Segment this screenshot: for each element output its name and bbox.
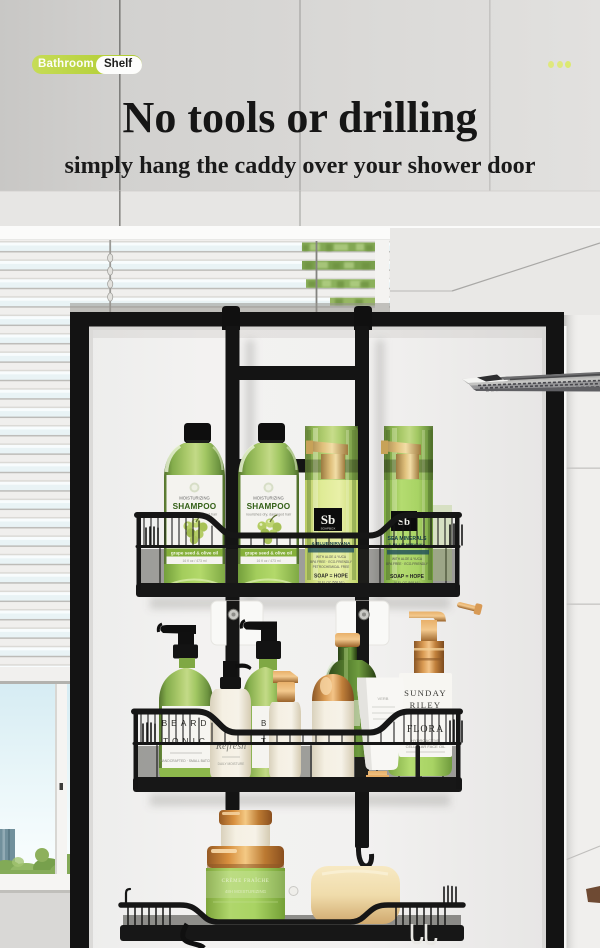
svg-text:BPA FREE · ECO-FRIENDLY: BPA FREE · ECO-FRIENDLY [386, 562, 429, 566]
svg-text:SOAPBOX: SOAPBOX [321, 527, 336, 531]
svg-text:WITH ALOE & YUCA: WITH ALOE & YUCA [316, 555, 347, 559]
svg-text:SEA MINERALS: SEA MINERALS [387, 536, 427, 542]
svg-text:grape seed & olive oil: grape seed & olive oil [245, 551, 292, 556]
svg-text:SOAP = HOPE: SOAP = HOPE [390, 574, 425, 580]
svg-text:nourishes dry, damaged hair: nourishes dry, damaged hair [246, 513, 292, 517]
svg-text:SOAP = HOPE: SOAP = HOPE [314, 574, 349, 580]
svg-text:Sb: Sb [321, 512, 335, 527]
svg-text:grape seed & olive oil: grape seed & olive oil [171, 551, 218, 556]
svg-text:CRÈME FRAÎCHE: CRÈME FRAÎCHE [222, 878, 270, 884]
svg-text:48H MOISTURIZING: 48H MOISTURIZING [225, 889, 267, 894]
svg-text:MOISTURIZING: MOISTURIZING [253, 496, 283, 501]
svg-text:VERB: VERB [378, 696, 389, 701]
svg-text:BPA FREE · ECO-FRIENDLY: BPA FREE · ECO-FRIENDLY [310, 560, 353, 564]
svg-text:PETROCHEMICAL FREE: PETROCHEMICAL FREE [313, 565, 350, 569]
svg-text:HANDCRAFTED · SMALL BATCH: HANDCRAFTED · SMALL BATCH [160, 759, 212, 763]
svg-text:16 fl oz / 473 ml: 16 fl oz / 473 ml [183, 559, 207, 563]
svg-text:SHAMPOO: SHAMPOO [247, 502, 291, 511]
svg-text:16 fl oz / 473 ml: 16 fl oz / 473 ml [257, 559, 281, 563]
svg-text:DAILY MOISTURE: DAILY MOISTURE [218, 762, 245, 766]
svg-text:SUNDAY: SUNDAY [404, 688, 447, 698]
svg-text:WITH ALOE & YUCA: WITH ALOE & YUCA [392, 557, 423, 561]
